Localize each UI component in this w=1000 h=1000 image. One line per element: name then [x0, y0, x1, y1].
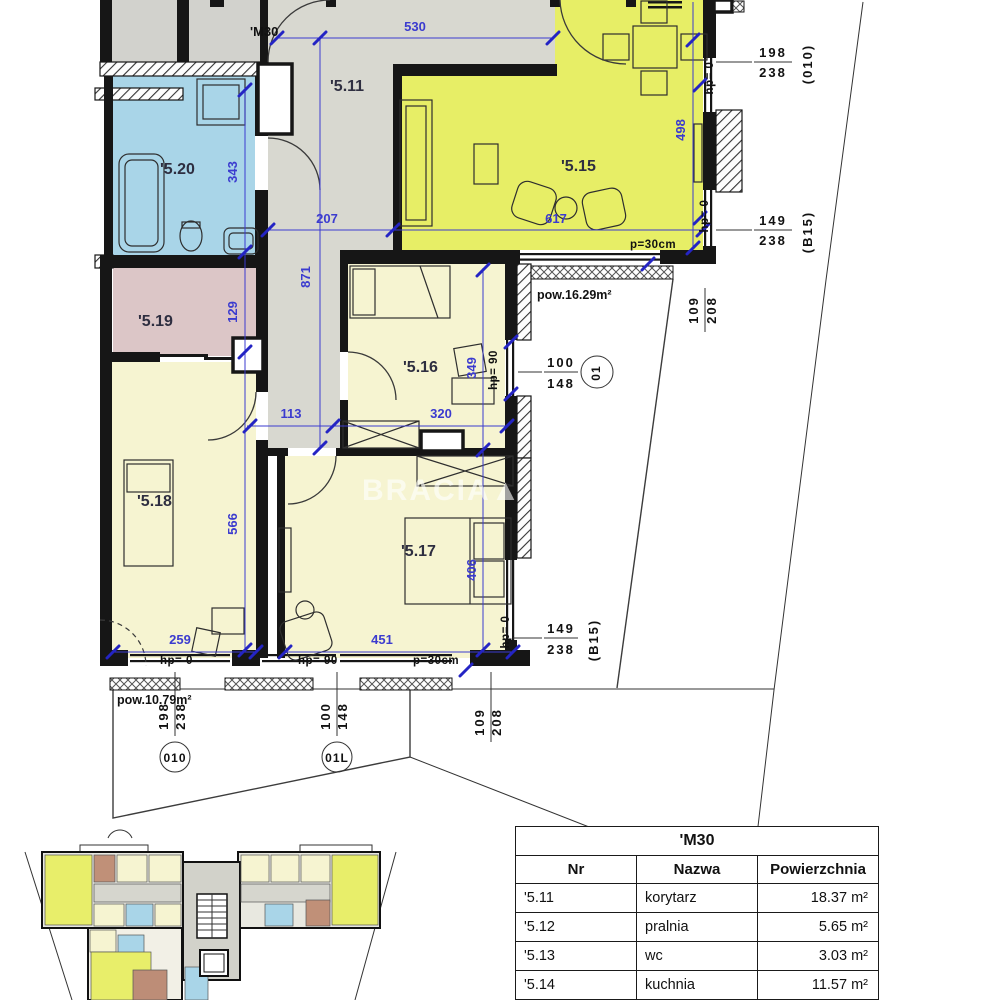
- tag-109-208-bottom-h: 208: [489, 708, 504, 736]
- hp-label: hp= 90: [298, 655, 338, 667]
- dim-320: 320: [430, 406, 452, 421]
- room-schedule-table: 'M30 Nr Nazwa Powierzchnia '5.11 korytar…: [515, 826, 879, 1000]
- table-row: '5.14 kuchnia 11.57 m²: [516, 971, 879, 1000]
- tag-o1-h: 148: [547, 376, 575, 391]
- cell-area: 18.37 m²: [758, 884, 879, 913]
- dim-871: 871: [298, 266, 313, 288]
- balcony-area-right: pow.16.29m²: [537, 288, 612, 302]
- room-label-5-15: '5.15: [561, 158, 596, 175]
- col-header-nazwa: Nazwa: [637, 856, 758, 884]
- room-label-5-17: '5.17: [401, 543, 436, 560]
- hp-label: hp= 90: [488, 350, 500, 390]
- cell-nr: '5.11: [516, 884, 637, 913]
- apartment-label: 'M30: [250, 24, 278, 39]
- tag-o10-top-code: (010): [800, 44, 815, 84]
- cell-nazwa: pralnia: [637, 913, 758, 942]
- balcony-parapet: [525, 266, 673, 279]
- dim-113: 113: [281, 406, 302, 421]
- hp-label: hp= 0: [704, 62, 716, 95]
- exterior-wall-hatched: [100, 62, 268, 76]
- cell-nazwa: wc: [637, 942, 758, 971]
- room-label-5-11: '5.11: [330, 78, 364, 95]
- cell-area: 5.65 m²: [758, 913, 879, 942]
- dim-617: 617: [545, 211, 567, 226]
- tag-o10-bottom-code: 010: [163, 751, 186, 765]
- niche-box-2: [421, 431, 463, 451]
- tag-109-208-bottom-w: 109: [472, 708, 487, 736]
- dim-349: 349: [464, 357, 479, 379]
- tag-109-208-right-h: 208: [704, 296, 719, 324]
- tag-o1l-h: 148: [335, 702, 350, 730]
- tag-b15-right-w: 149: [759, 213, 787, 228]
- neighbor-area: [112, 0, 268, 64]
- balcony-right-edge: [617, 279, 673, 688]
- dim-498: 498: [673, 119, 688, 141]
- floorplan-page: 'M30 '5.11 '5.15 '5.16 '5.17 '5.18 '5.19…: [0, 0, 1000, 1000]
- tag-o1l-code: 01L: [325, 751, 349, 765]
- room-5-16: [348, 262, 505, 448]
- tag-o1-code: 01: [589, 365, 603, 380]
- room-label-5-20: '5.20: [160, 161, 195, 178]
- cell-nazwa: korytarz: [637, 884, 758, 913]
- tag-o1l-w: 100: [318, 702, 333, 730]
- dim-530: 530: [404, 19, 426, 34]
- room-label-5-18: '5.18: [137, 493, 172, 510]
- room-label-5-19: '5.19: [138, 313, 173, 330]
- col-header-nr: Nr: [516, 856, 637, 884]
- p30-label: p=30cm: [630, 239, 676, 251]
- hp-label: hp= 0: [699, 200, 711, 233]
- cell-area: 3.03 m²: [758, 942, 879, 971]
- niche-box: [233, 338, 263, 372]
- hp-label: hp= 0: [500, 616, 512, 649]
- dim-451: 451: [371, 632, 393, 647]
- p30-label: p=30cm: [413, 655, 459, 667]
- dim-129: 129: [225, 301, 240, 323]
- table-row: '5.11 korytarz 18.37 m²: [516, 884, 879, 913]
- cell-nr: '5.14: [516, 971, 637, 1000]
- cell-nr: '5.12: [516, 913, 637, 942]
- room-5-18: [112, 362, 256, 658]
- tag-o10-bottom-w: 198: [156, 702, 171, 730]
- dim-259: 259: [169, 632, 191, 647]
- shaft-box: [258, 64, 292, 134]
- tag-b15-right-code: (B15): [800, 211, 815, 254]
- dim-207: 207: [316, 211, 338, 226]
- dim-566: 566: [225, 513, 240, 535]
- tag-o1-w: 100: [547, 355, 575, 370]
- tag-o10-top-w: 198: [759, 45, 787, 60]
- tag-109-208-right-w: 109: [686, 296, 701, 324]
- col-header-powierzchnia: Powierzchnia: [758, 856, 879, 884]
- table-title: 'M30: [516, 827, 879, 856]
- table-row: '5.12 pralnia 5.65 m²: [516, 913, 879, 942]
- tag-o10-top-h: 238: [759, 65, 787, 80]
- dim-343: 343: [225, 161, 240, 183]
- cell-nazwa: kuchnia: [637, 971, 758, 1000]
- table-row: '5.13 wc 3.03 m²: [516, 942, 879, 971]
- property-line-right: [757, 2, 863, 835]
- cell-nr: '5.13: [516, 942, 637, 971]
- dim-406: 406: [464, 559, 479, 581]
- tag-b15-right-h: 238: [759, 233, 787, 248]
- tag-o10-bottom-h: 238: [173, 702, 188, 730]
- tag-b15-bottom-code: (B15): [586, 619, 601, 662]
- building-overview-plan: [25, 830, 396, 1000]
- room-label-5-16: '5.16: [403, 359, 438, 376]
- tag-b15-bottom-h: 238: [547, 642, 575, 657]
- cell-area: 11.57 m²: [758, 971, 879, 1000]
- tag-b15-bottom-w: 149: [547, 621, 575, 636]
- hp-label: hp= 0: [160, 655, 193, 667]
